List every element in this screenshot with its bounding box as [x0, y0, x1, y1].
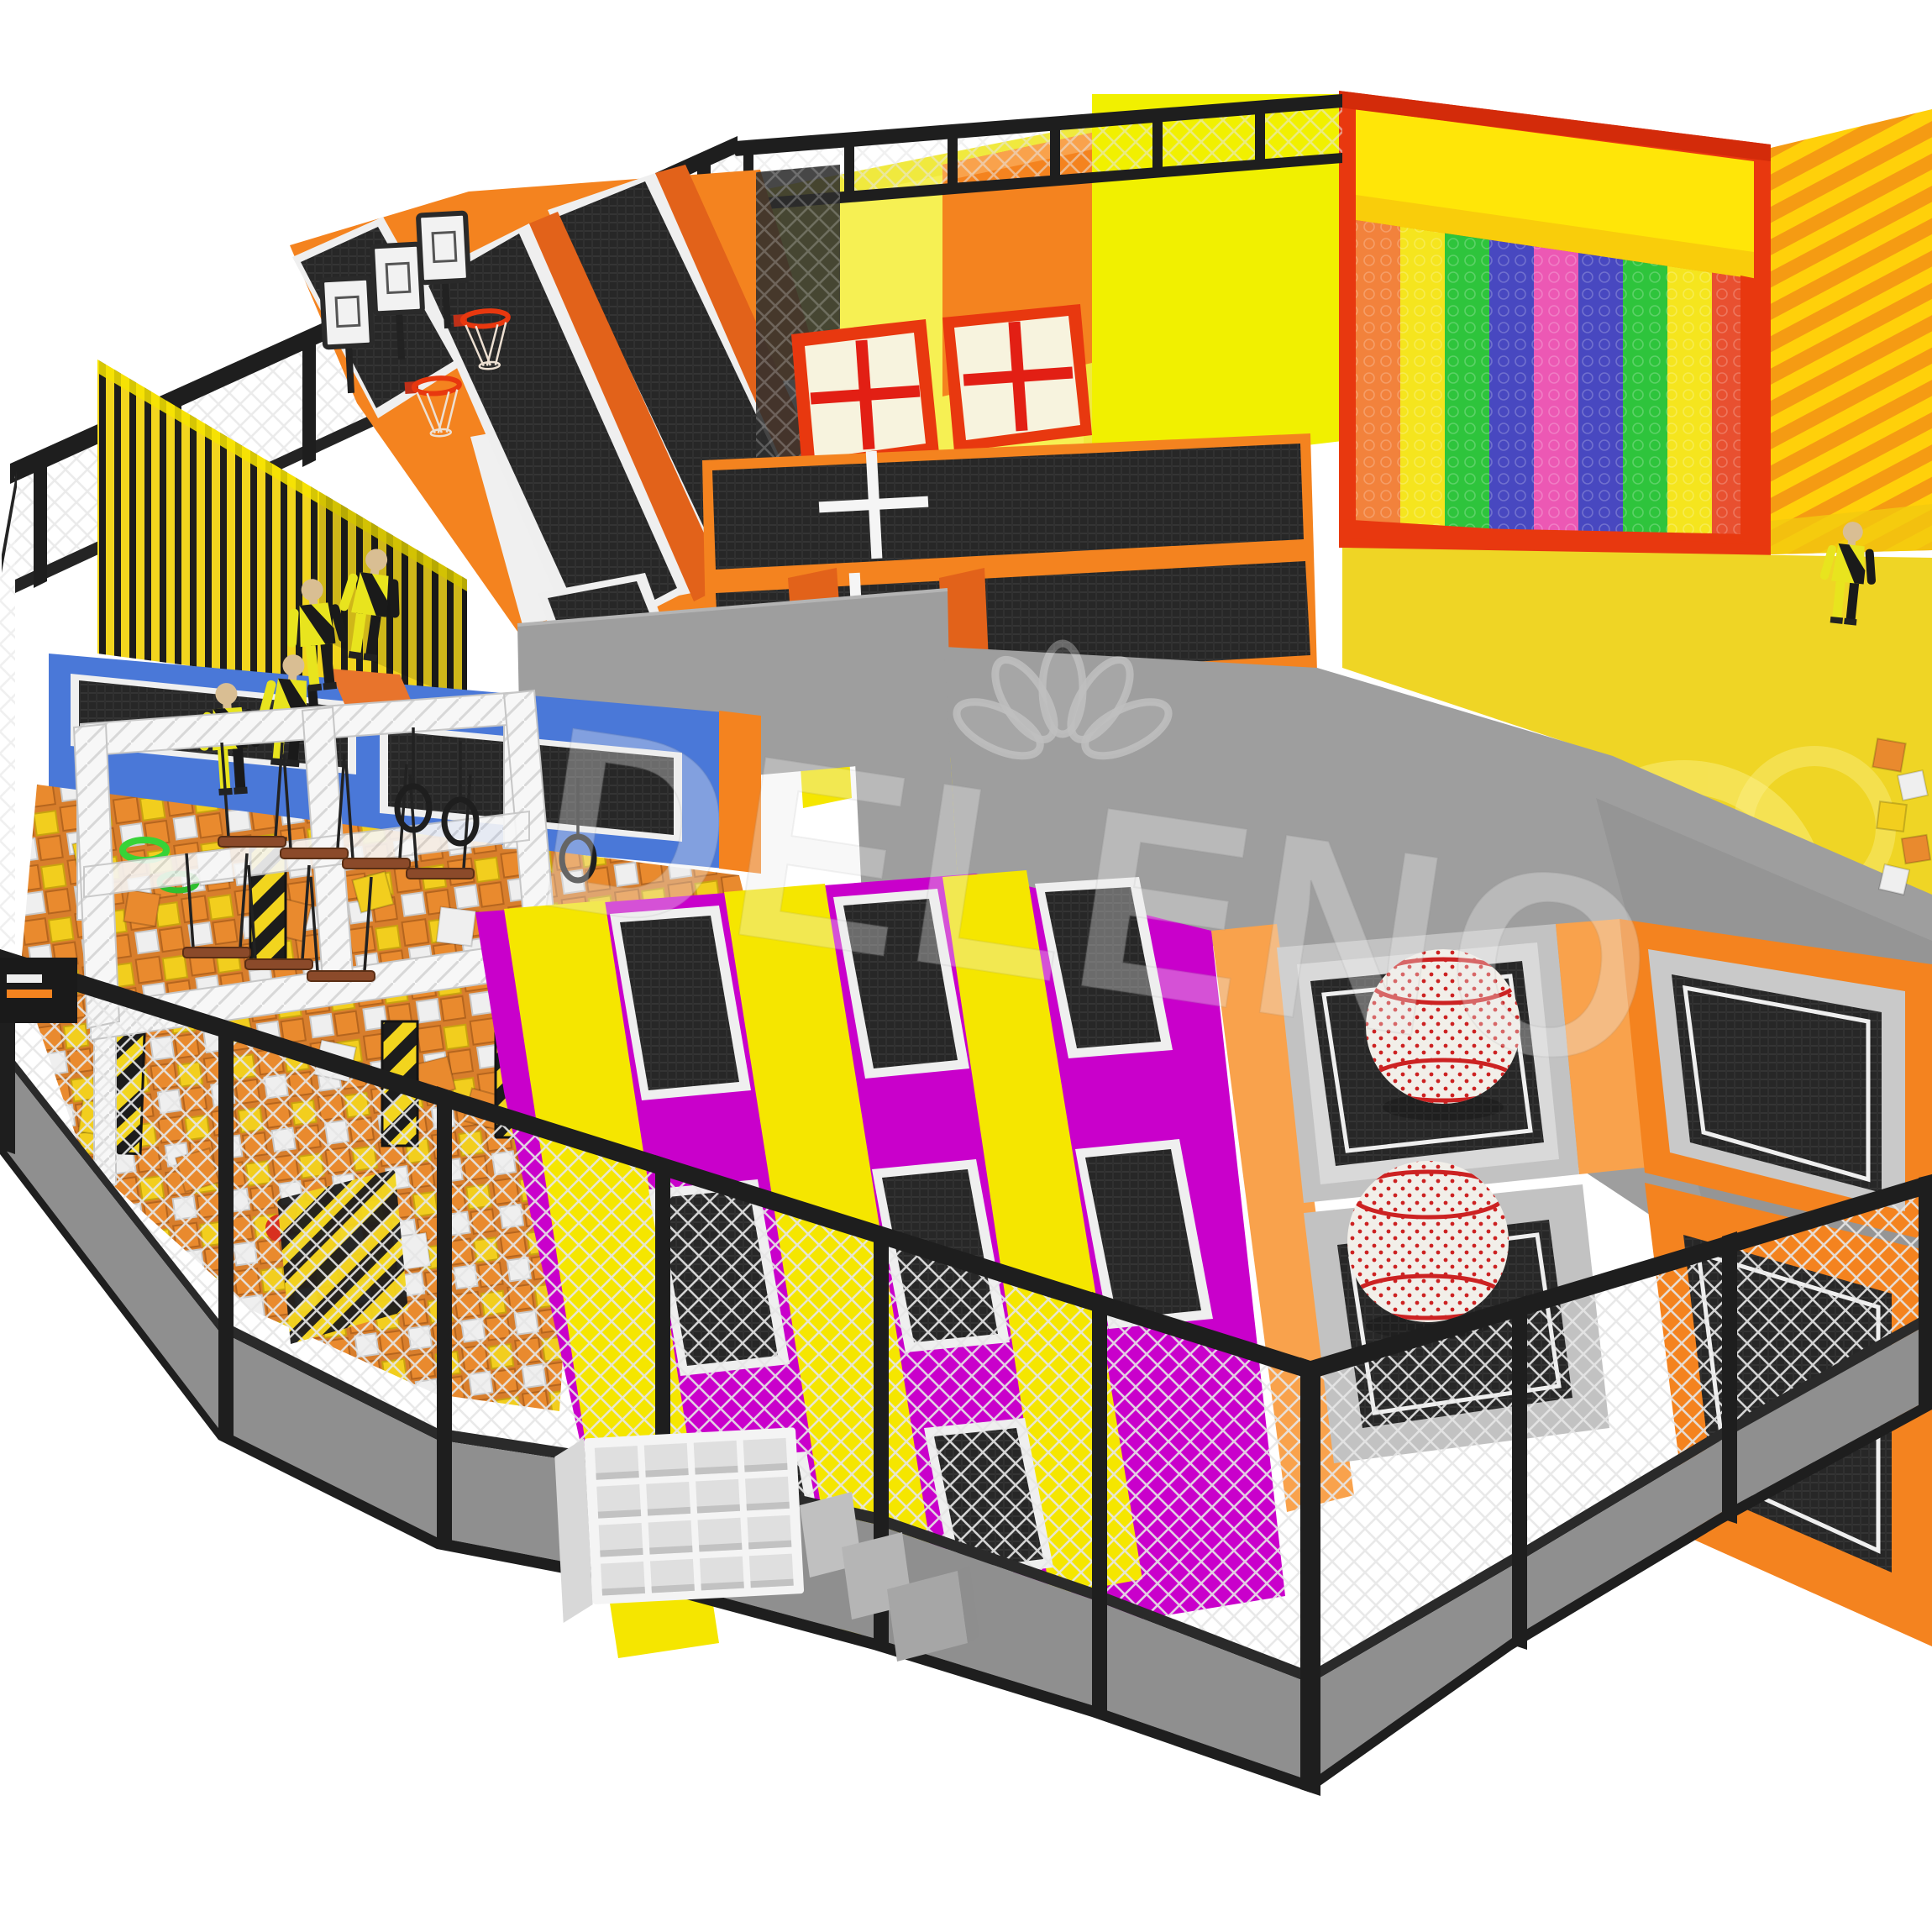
roller-slide — [1771, 109, 1932, 554]
shoe-cubby-shelf — [554, 1427, 805, 1623]
rainbow-climb — [1339, 91, 1771, 564]
fence-corner-sign — [0, 958, 77, 1023]
trampoline-park-render: DELENO — [0, 0, 1932, 1932]
park-canvas: DELENO — [0, 0, 1932, 1932]
